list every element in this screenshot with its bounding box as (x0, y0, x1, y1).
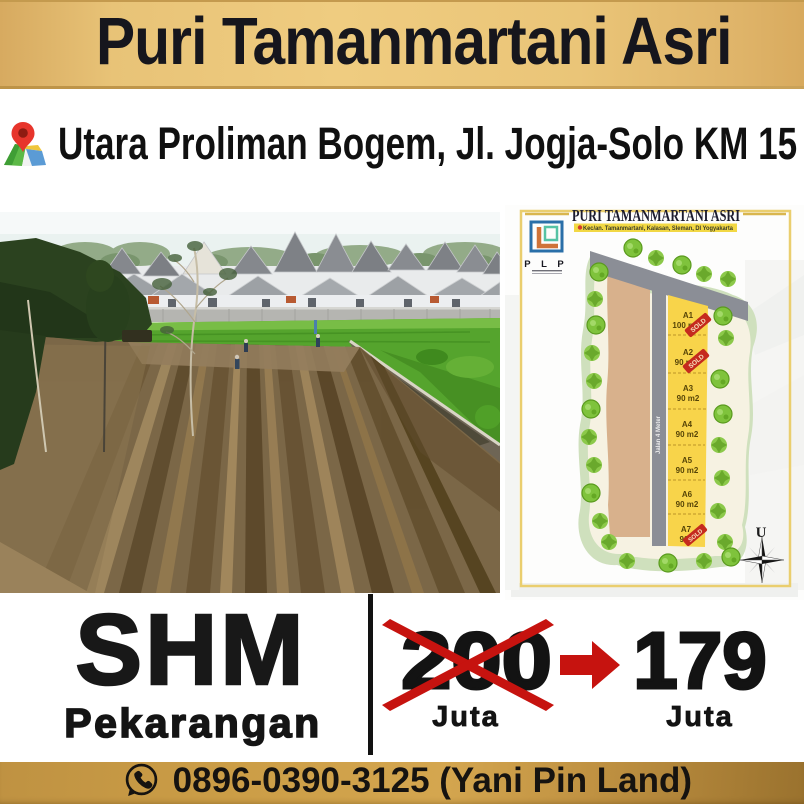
svg-text:PURI TAMANMARTANI ASRI: PURI TAMANMARTANI ASRI (572, 206, 740, 225)
svg-text:90 m2: 90 m2 (677, 394, 700, 403)
svg-text:A4: A4 (682, 420, 693, 429)
svg-text:90 m2: 90 m2 (676, 430, 699, 439)
svg-text:90 m2: 90 m2 (676, 466, 699, 475)
svg-text:P L P: P L P (524, 259, 567, 270)
svg-text:A7: A7 (681, 525, 692, 534)
svg-text:90 m2: 90 m2 (676, 500, 699, 509)
svg-text:A2: A2 (683, 348, 694, 357)
svg-text:A3: A3 (683, 384, 694, 393)
svg-text:Jalan 4 Meter: Jalan 4 Meter (656, 415, 662, 454)
svg-text:A5: A5 (682, 456, 693, 465)
svg-text:Kec/an. Tamanmartani, Kalasan,: Kec/an. Tamanmartani, Kalasan, Sleman, D… (583, 225, 734, 232)
svg-text:A1: A1 (683, 311, 694, 320)
svg-text:U: U (756, 525, 767, 541)
svg-text:A6: A6 (682, 490, 693, 499)
